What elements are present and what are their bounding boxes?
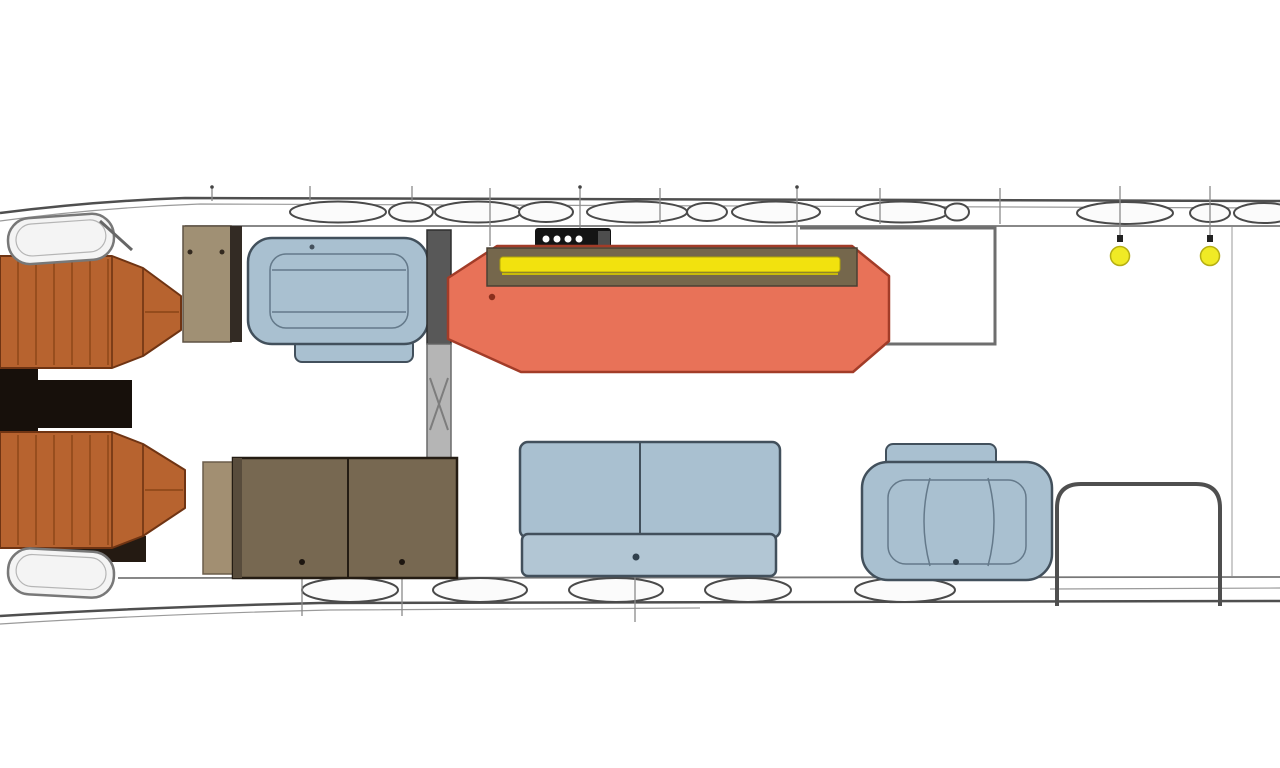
sunpad-yellow-rail [500, 257, 840, 272]
bolster-oval [856, 202, 948, 223]
bolster-oval [519, 202, 573, 222]
deck-light-icon [1111, 247, 1130, 266]
bench-seat [520, 442, 780, 538]
table-top [233, 458, 457, 578]
grill-burner-dot [565, 236, 572, 243]
bolster-oval [732, 202, 820, 223]
bench-button-dot [633, 554, 640, 561]
bolster-oval [290, 202, 386, 223]
bolster-oval [435, 202, 521, 223]
aft-bench-sofa [520, 442, 780, 576]
grill-burner-dot [576, 236, 583, 243]
port-helm-seat [0, 256, 181, 368]
bolster-oval [1077, 202, 1173, 224]
bench-backrest [522, 534, 776, 576]
forward-sofa [248, 238, 428, 362]
table-leg-dot [299, 559, 305, 565]
cabinet-fitting-dot [220, 250, 225, 255]
deck-plan-svg [0, 0, 1280, 768]
stanchion-dot [795, 185, 799, 189]
helm-console [0, 368, 132, 440]
bolster-oval [705, 578, 791, 602]
sunpad-lounge [448, 246, 889, 372]
starboard-helm-seat [0, 432, 185, 548]
table-edge [233, 458, 242, 578]
stanchion-dot [210, 185, 214, 189]
grill-knob [598, 231, 610, 246]
bolster-oval [1234, 203, 1280, 223]
bow-pad-upper [7, 212, 116, 265]
aft-armchair [862, 444, 1052, 580]
bolster-oval [569, 578, 663, 602]
table-leg-dot [399, 559, 405, 565]
deck-light-icon [1201, 247, 1220, 266]
mast-column [427, 230, 451, 460]
bar-cabinet [183, 226, 242, 342]
bolster-oval [302, 578, 398, 602]
gunwale-bolsters-bottom [302, 578, 955, 602]
cabinet-body [183, 226, 231, 342]
table-side-leaf [203, 462, 233, 574]
bolster-oval [855, 578, 955, 602]
aft-stairs-outline [1057, 484, 1220, 606]
light-base [1207, 235, 1213, 242]
bow-pad-body [7, 212, 116, 265]
light-base [1117, 235, 1123, 242]
bolster-oval [587, 202, 687, 223]
stern-deck-line [1050, 588, 1280, 589]
bolster-oval [945, 204, 969, 221]
sofa-button-dot [310, 245, 315, 250]
bolster-oval [687, 203, 727, 221]
bolster-oval [389, 203, 433, 222]
grill-burner-dot [554, 236, 561, 243]
stanchion-dot [578, 185, 582, 189]
bow-pad-lower [7, 547, 115, 598]
armchair-button-dot [953, 559, 959, 565]
deck-plan-canvas [0, 0, 1280, 768]
cabinet-fitting-dot [188, 250, 193, 255]
cabinet-wall-edge [230, 226, 242, 342]
sunpad-fitting-dot [489, 294, 495, 300]
grill-burner-dot [543, 236, 550, 243]
bow-pad-body [7, 547, 115, 598]
dinette-table [203, 458, 457, 578]
bolster-oval [433, 578, 527, 602]
